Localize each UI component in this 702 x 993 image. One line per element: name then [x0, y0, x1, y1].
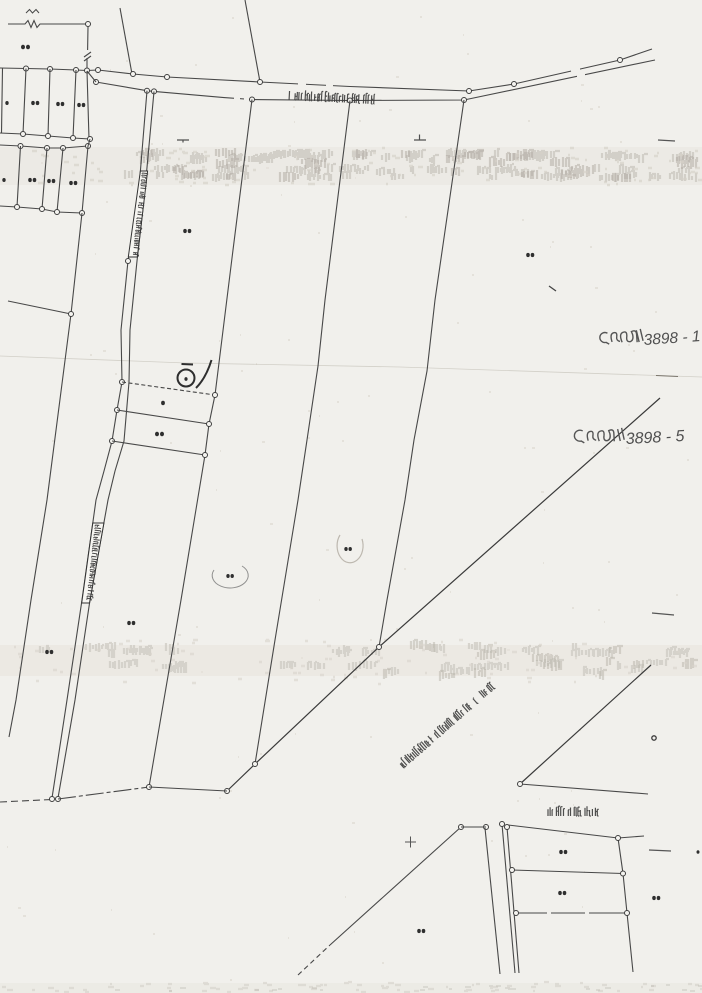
svg-text:3898 - 5: 3898 - 5	[625, 428, 685, 448]
